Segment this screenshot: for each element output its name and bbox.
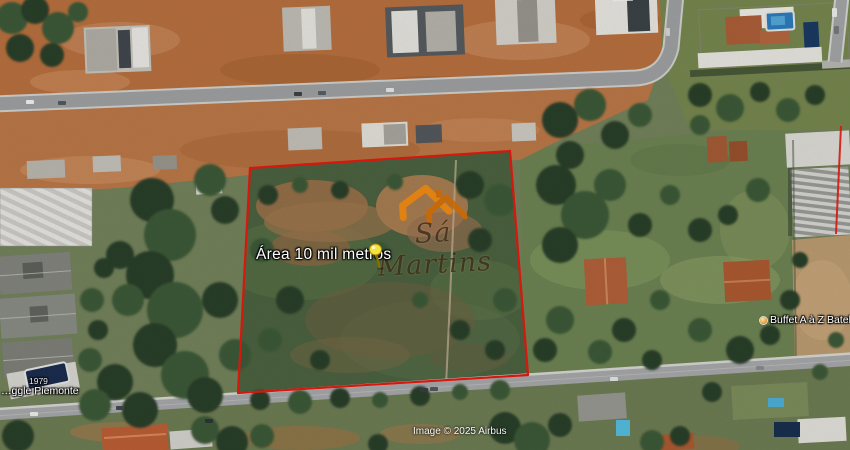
poi-buffet-name: Buffet A à Z Batel <box>770 314 850 326</box>
poi-label-piemonte[interactable]: 1979 …ggle Piemonte <box>1 377 79 398</box>
poi-label-buffet[interactable]: Buffet A à Z Batel <box>760 314 850 326</box>
poi-piemonte-number: 1979 <box>29 377 79 386</box>
yellow-pushpin-icon[interactable] <box>368 243 386 271</box>
poi-marker-icon <box>760 317 767 324</box>
satellite-map-canvas[interactable]: Sá Martins Área 10 mil metros 1979 …ggle… <box>0 0 850 450</box>
poi-piemonte-name: …ggle Piemonte <box>1 386 79 398</box>
attribution: Image © 2025 Airbus <box>413 426 507 437</box>
